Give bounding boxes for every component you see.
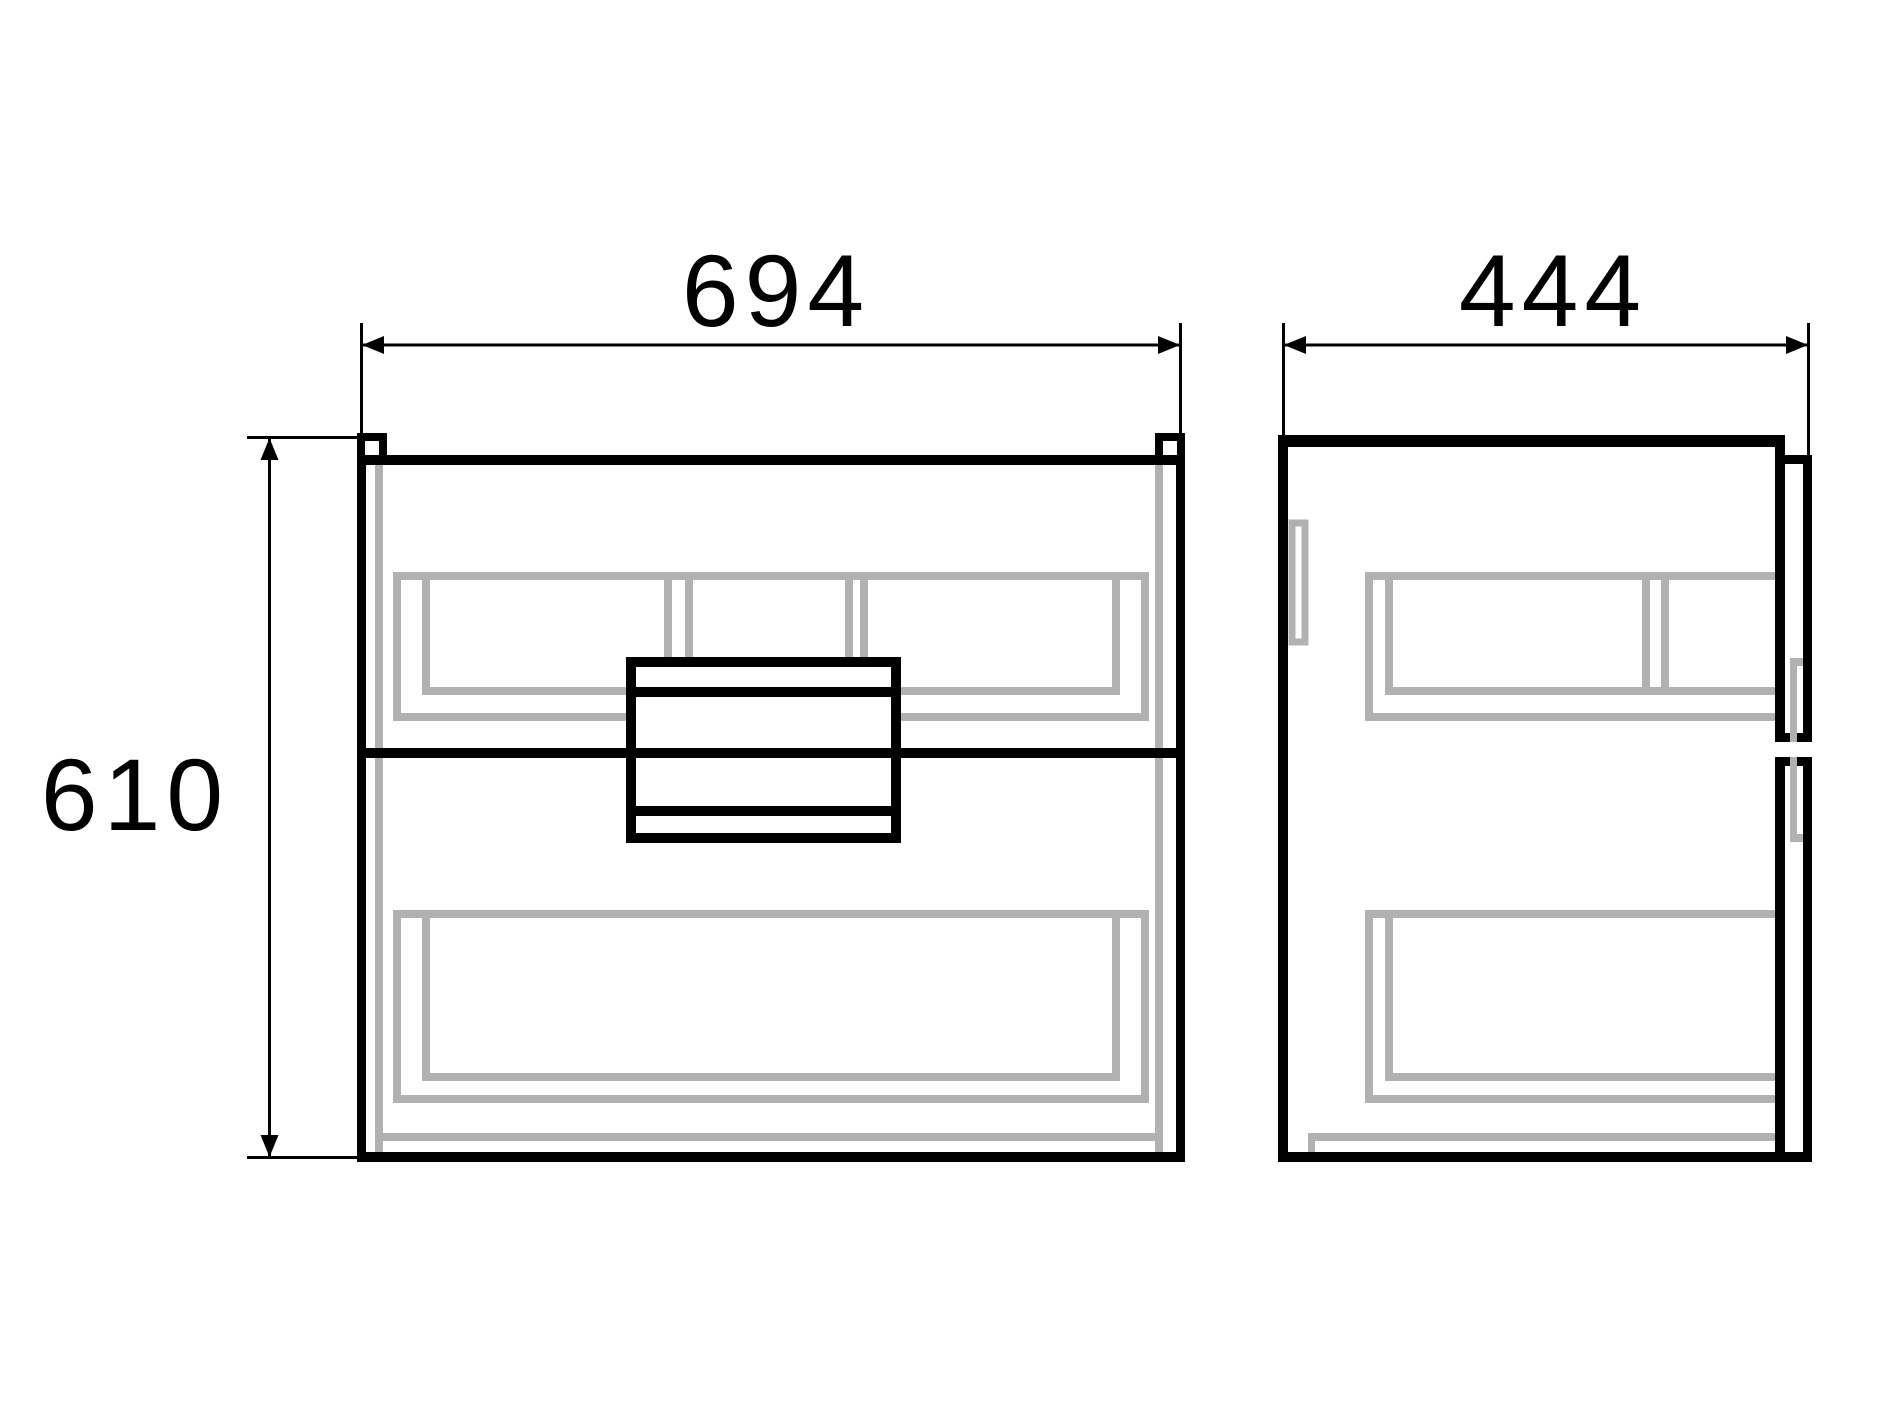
drawing-canvas: 694 444 610 [0,0,1891,1419]
wall-rail [1292,523,1305,642]
dim-depth-arrow-left [1284,336,1306,354]
lower-drawer-inner-bottom [422,1073,1120,1081]
side-bottom-edge [1278,1152,1812,1162]
height-label: 610 [41,738,229,852]
lower-handle-cap [1790,834,1803,842]
side-lower-drawer-top [1365,910,1775,918]
front-right-edge [1176,455,1185,1162]
side-upper-drawer-outer-bottom [1365,713,1775,721]
dim-width-arrow-right [1158,336,1180,354]
side-upper-drawer-top [1365,572,1775,580]
upper-drawer-inner-left [422,580,430,695]
upper-drawer-outer-right [1141,572,1149,721]
upper-drawer-outer-left [393,572,401,721]
dim-width-arrow-left [362,336,384,354]
upper-drawer-top-line [393,572,1149,580]
dim-height: 610 [41,438,387,1158]
siphon-cutout-lower-line [636,806,891,816]
lower-drawer-inner-right [1112,918,1120,1081]
dim-depth-arrow-right [1786,336,1808,354]
front-view [357,433,1185,1162]
front-right-panel-inner-line [1155,465,1163,1152]
lower-drawer-top-line [393,910,1149,918]
front-left-edge [357,455,366,1162]
front-width-label: 694 [682,234,870,348]
right-mounting-tab-hole [1163,441,1177,455]
dim-width: 694 [362,234,1181,433]
side-front-face-upper [1775,435,1785,742]
side-upper-drawer-rib-b [1661,580,1669,695]
lower-drawer-outer-left [393,910,401,1103]
side-view [1278,435,1812,1162]
side-depth-label: 444 [1459,234,1647,348]
front-left-panel-inner-line [375,465,383,1152]
side-upper-drawer-outer-left [1365,572,1373,721]
front-bottom-edge [357,1152,1185,1162]
side-front-face-lower [1775,757,1785,1152]
upper-drawer-inner-right [1112,580,1120,695]
side-lower-drawer-inner-bottom [1393,1073,1775,1081]
dim-depth: 444 [1284,234,1809,455]
dim-height-arrow-bottom [261,1135,279,1157]
side-upper-drawer-rib-a [1642,580,1650,695]
dim-height-arrow-top [261,438,279,460]
side-upper-drawer-inner-bottom [1393,687,1775,695]
side-carcass-outline [1278,435,1812,1162]
siphon-cutout-upper-line [636,687,891,697]
side-hidden-lines [1292,523,1775,1153]
front-bottom-rail-line [377,1133,1163,1141]
lower-drawer-inner-left [422,918,430,1081]
side-handle-profiles [1790,658,1803,842]
side-bottom-rail-line [1308,1133,1775,1141]
side-lower-drawer-inner-left [1385,918,1393,1081]
lower-front-panel-face [1803,757,1812,1152]
lower-drawer-outer-bottom [393,1095,1149,1103]
left-mounting-tab-hole [365,441,379,455]
lower-handle-vertical [1790,757,1797,842]
technical-drawing: 694 444 610 [0,0,1891,1419]
side-lower-drawer-outer-bottom [1365,1095,1775,1103]
side-bottom-rail-jog [1308,1133,1315,1153]
lower-drawer-outer-right [1141,910,1149,1103]
side-upper-drawer-inner-left [1385,580,1393,695]
front-top-edge [357,455,1185,465]
side-left-edge [1278,435,1288,1162]
upper-front-panel-face [1803,455,1812,742]
upper-handle-vertical [1790,658,1797,742]
front-drawer-divider [357,748,1185,758]
side-lower-drawer-outer-left [1365,910,1373,1103]
side-top-edge [1278,435,1785,447]
